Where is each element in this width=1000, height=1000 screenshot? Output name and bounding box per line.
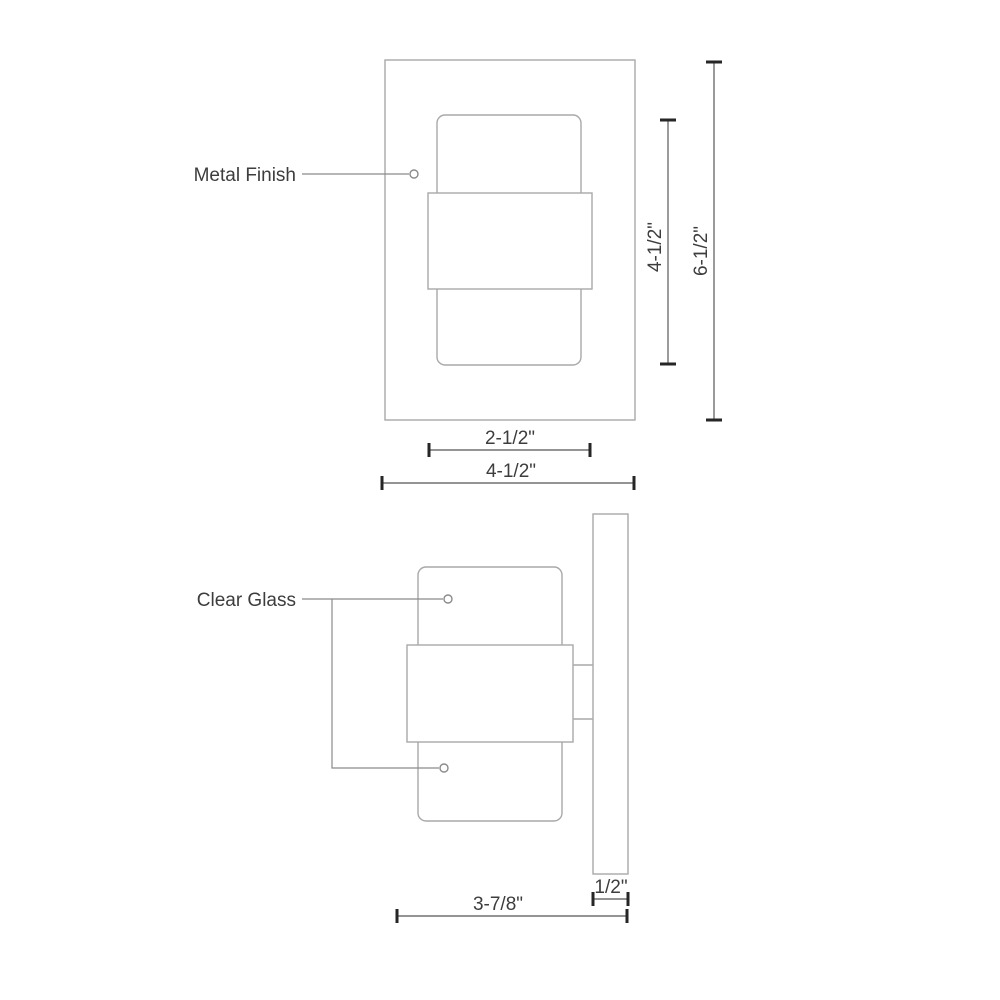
front-backplate-width-value: 4-1/2": [486, 461, 536, 482]
front-overall-height-value: 6-1/2": [691, 226, 712, 276]
front-glass-height-dimension: 4-1/2": [645, 120, 676, 364]
side-metal-band-outline: [407, 645, 573, 742]
side-wallplate-thickness-dimension: 1/2": [593, 877, 628, 906]
wall-sconce-dimension-drawing: Metal Finish 4-1/2" 6-1/2" 2-1/2": [0, 0, 1000, 1000]
front-band-width-value: 2-1/2": [485, 428, 535, 449]
front-backplate-width-dimension: 4-1/2": [382, 461, 634, 490]
metal-finish-leader-dot: [410, 170, 418, 178]
dimension-drawing-page: Metal Finish 4-1/2" 6-1/2" 2-1/2": [0, 0, 1000, 1000]
clear-glass-label: Clear Glass: [197, 590, 296, 611]
clear-glass-leader-dot-lower: [440, 764, 448, 772]
front-metal-band-outline: [428, 193, 592, 289]
front-glass-height-value: 4-1/2": [645, 222, 666, 272]
front-overall-height-dimension: 6-1/2": [691, 62, 722, 420]
front-view: Metal Finish 4-1/2" 6-1/2" 2-1/2": [194, 60, 722, 490]
side-extension-depth-value: 3-7/8": [473, 894, 523, 915]
side-wallplate-thickness-value: 1/2": [594, 877, 627, 898]
side-wallplate-outline: [593, 514, 628, 874]
side-view: Clear Glass 1/2" 3-7/8": [197, 514, 628, 923]
metal-finish-label: Metal Finish: [194, 165, 296, 186]
clear-glass-leader-dot-upper: [444, 595, 452, 603]
front-band-width-dimension: 2-1/2": [429, 428, 590, 457]
